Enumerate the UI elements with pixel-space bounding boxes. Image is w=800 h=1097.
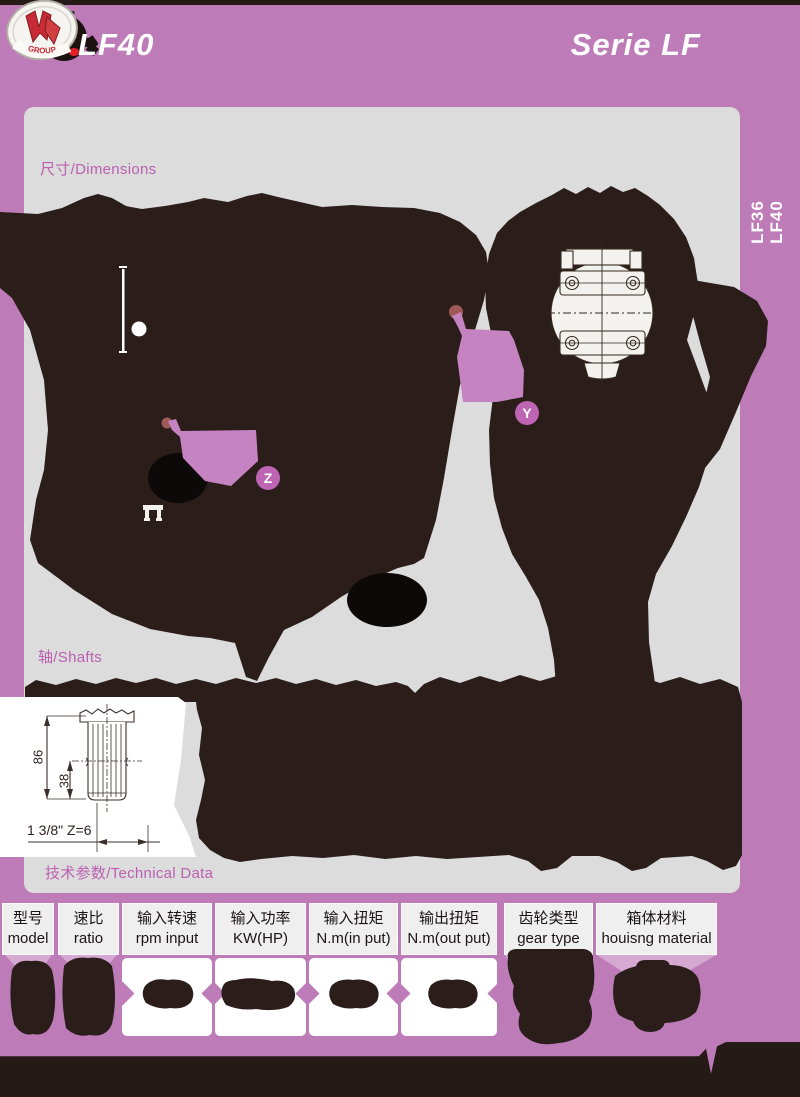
spline-spec-label: 1 3/8" Z=6 <box>27 822 92 838</box>
cell-trapezoid <box>597 955 716 983</box>
table-cell-power <box>215 958 306 1036</box>
dimension-value-total: 86 <box>31 750 46 764</box>
marker-badge-y: Y <box>515 401 539 425</box>
table-header-rpm-input: 输入转速rpm input <box>122 903 212 955</box>
table-header-torque-out: 输出扭矩N.m(out put) <box>401 903 497 955</box>
series-tab-line2: LF40 <box>767 200 786 244</box>
top-black-bar <box>0 0 800 5</box>
section-label-technical: 技术参数/Technical Data <box>45 862 213 883</box>
table-header-model: 型号model <box>2 903 54 955</box>
section-label-shafts: 轴/Shafts <box>38 646 102 667</box>
cell-trapezoid <box>60 955 117 985</box>
footer-black-bar <box>0 1042 800 1097</box>
table-header-torque-in: 输入扭矩N.m(in put) <box>309 903 398 955</box>
table-header-gear-type: 齿轮类型gear type <box>504 903 593 955</box>
cell-trapezoid <box>505 955 592 987</box>
datasheet-page: { "header": { "model": "LF40", "series":… <box>0 0 800 1097</box>
series-tab-line1: LF36 <box>748 200 767 244</box>
content-panel <box>24 107 740 893</box>
dimension-value-spline: 38 <box>57 774 72 788</box>
table-cell-torque-in <box>309 958 398 1036</box>
table-header-housing: 箱体材料houisng material <box>596 903 717 955</box>
table-cell-torque-out <box>401 958 497 1036</box>
page-title-series: Serie LF <box>571 27 701 63</box>
cell-trapezoid <box>5 955 52 983</box>
marker-badge-z: Z <box>256 466 280 490</box>
table-cell-rpm <box>122 958 212 1036</box>
series-range-tab: LF36 LF40 <box>744 197 790 247</box>
table-header-ratio: 速比ratio <box>58 903 119 955</box>
table-header-power: 输入功率KW(HP) <box>215 903 306 955</box>
section-label-dimensions: 尺寸/Dimensions <box>40 158 156 179</box>
page-title-model: LF40 <box>78 27 154 63</box>
